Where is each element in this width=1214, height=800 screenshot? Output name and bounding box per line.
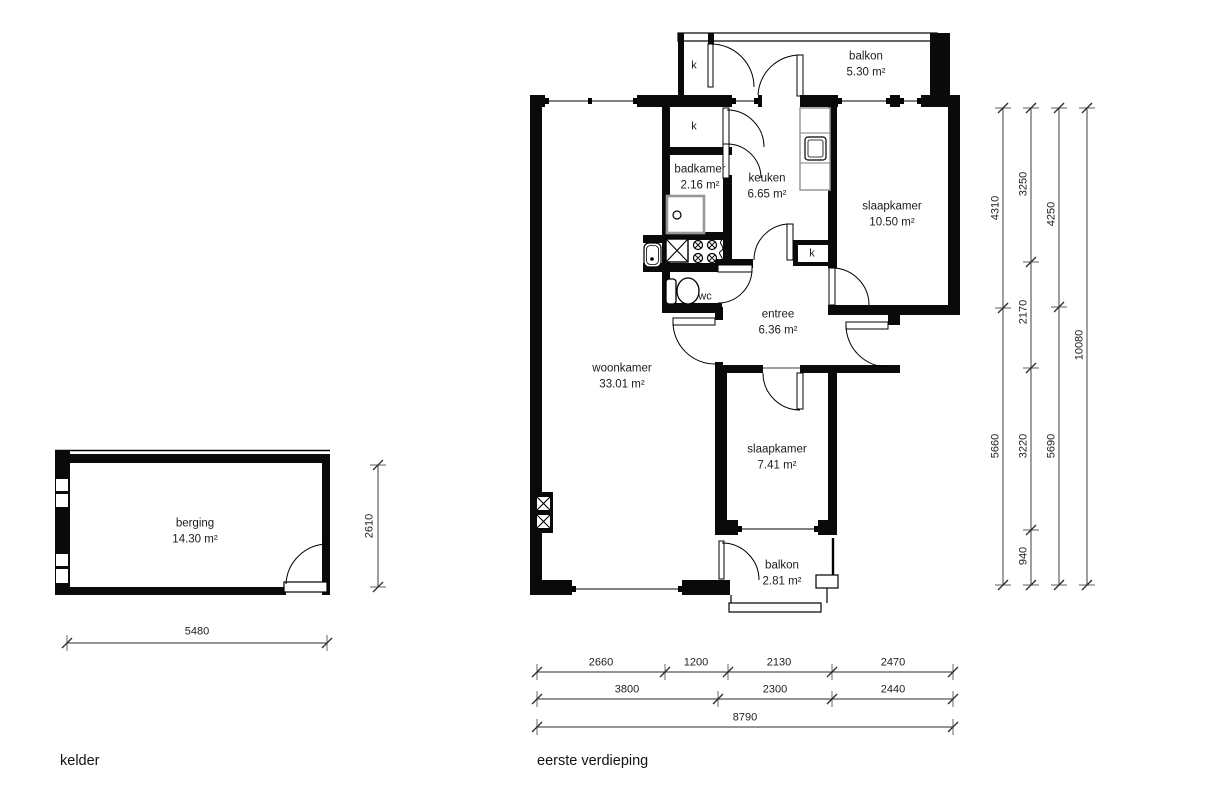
shower <box>667 196 704 233</box>
closet-door <box>723 108 764 147</box>
stove <box>694 241 717 263</box>
room-label-berging-name: berging <box>176 518 214 530</box>
balcony-top-railing <box>678 33 937 41</box>
dim-h-2440: 2440 <box>881 685 905 696</box>
kelder-plan <box>55 450 386 651</box>
kitchen-counter <box>800 108 830 190</box>
wc-door <box>718 265 752 303</box>
hand-basin <box>644 243 661 267</box>
balcony2-door <box>719 541 759 580</box>
room-label-badkamer-name: badkamer <box>674 164 725 176</box>
caption-kelder: kelder <box>60 753 100 769</box>
dim-v-5690: 5690 <box>1047 434 1058 458</box>
room-label-badkamer-area: 2.16 m² <box>681 180 720 192</box>
dimension-lines <box>532 103 1095 735</box>
dim-h-2130: 2130 <box>767 658 791 669</box>
kelder-dimension-lines <box>62 460 386 651</box>
caption-eerste-verdieping: eerste verdieping <box>537 753 648 769</box>
dim-v-3220: 3220 <box>1019 434 1030 458</box>
room-label-keuken-name: keuken <box>748 173 785 185</box>
room-label-slaapkamer1-name: slaapkamer <box>862 201 921 213</box>
dim-v-4310: 4310 <box>991 196 1002 220</box>
bedroom2-door <box>763 368 803 410</box>
room-label-balkon-top-name: balkon <box>849 51 883 63</box>
dim-v-3250: 3250 <box>1019 172 1030 196</box>
dim-kelder-height: 2610 <box>365 514 376 538</box>
duct-shaft <box>666 239 688 262</box>
room-label-woonkamer-name: woonkamer <box>592 363 651 375</box>
room-label-balkon-bottom-name: balkon <box>765 560 799 572</box>
room-label-slaapkamer1-area: 10.50 m² <box>869 217 914 229</box>
floorplan-page: berging 14.30 m² 5480 2610 kelder balkon… <box>0 0 1214 800</box>
livingroom-door <box>673 318 715 364</box>
room-label-berging-area: 14.30 m² <box>172 534 217 546</box>
room-label-balkon-top-area: 5.30 m² <box>847 67 886 79</box>
room-label-entree-name: entree <box>762 309 795 321</box>
balcony-closet <box>678 33 754 95</box>
dim-v-4250: 4250 <box>1047 202 1058 226</box>
room-label-slaapkamer2-name: slaapkamer <box>747 444 806 456</box>
balcony-door <box>758 55 803 96</box>
dim-kelder-width: 5480 <box>185 627 209 638</box>
kitchen-door <box>754 224 793 260</box>
room-label-entree-area: 6.36 m² <box>759 325 798 337</box>
dim-h-2300: 2300 <box>763 685 787 696</box>
dim-v-2170: 2170 <box>1019 300 1030 324</box>
closet-label-balcony: k <box>691 61 697 72</box>
exterior-walls <box>530 95 960 595</box>
dim-h-1200: 1200 <box>684 658 708 669</box>
room-label-slaapkamer2-area: 7.41 m² <box>758 460 797 472</box>
dim-h-8790: 8790 <box>733 713 757 724</box>
dim-h-2470: 2470 <box>881 658 905 669</box>
chimney-shaft <box>534 492 553 533</box>
dim-v-940: 940 <box>1019 547 1030 565</box>
toilet <box>666 278 699 304</box>
room-label-balkon-bottom-area: 2.81 m² <box>763 576 802 588</box>
dim-h-3800: 3800 <box>615 685 639 696</box>
dim-v-5660: 5660 <box>991 434 1002 458</box>
room-label-woonkamer-area: 33.01 m² <box>599 379 644 391</box>
dim-v-10080: 10080 <box>1075 330 1086 361</box>
kelder-door <box>284 544 328 592</box>
wc-label: wc <box>698 292 711 303</box>
closet-label-bathroom: k <box>691 122 697 133</box>
boiler-flue <box>720 240 723 262</box>
dim-h-2660: 2660 <box>589 658 613 669</box>
bedroom1-door <box>829 268 869 305</box>
room-label-keuken-area: 6.65 m² <box>748 189 787 201</box>
floorplan-drawing <box>0 0 1214 800</box>
front-door <box>846 322 888 367</box>
closet-label-entree: k <box>809 249 815 260</box>
